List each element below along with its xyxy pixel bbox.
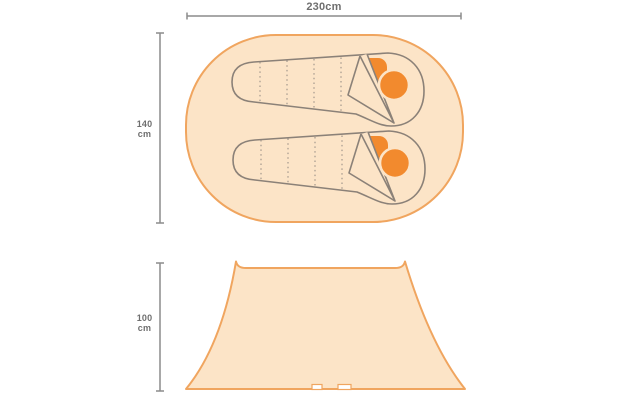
width-dimension-label: 230cm (262, 1, 386, 13)
tent-floor-plan (186, 35, 463, 222)
tent-dimensions-diagram: 230cm 140 cm 100 cm (0, 0, 640, 400)
tent-profile-outline (186, 262, 465, 390)
profile-height-dimension-label: 100 cm (131, 314, 158, 333)
floorplan-height-dimension-label: 140 cm (131, 120, 158, 139)
diagram-svg (0, 0, 640, 400)
door-zipper-notch (312, 385, 322, 390)
door-zipper-notch (338, 385, 351, 390)
profile-height-unit: cm (131, 324, 158, 334)
floorplan-height-unit: cm (131, 130, 158, 140)
width-dimension-line (187, 13, 461, 20)
tent-profile (186, 262, 465, 390)
